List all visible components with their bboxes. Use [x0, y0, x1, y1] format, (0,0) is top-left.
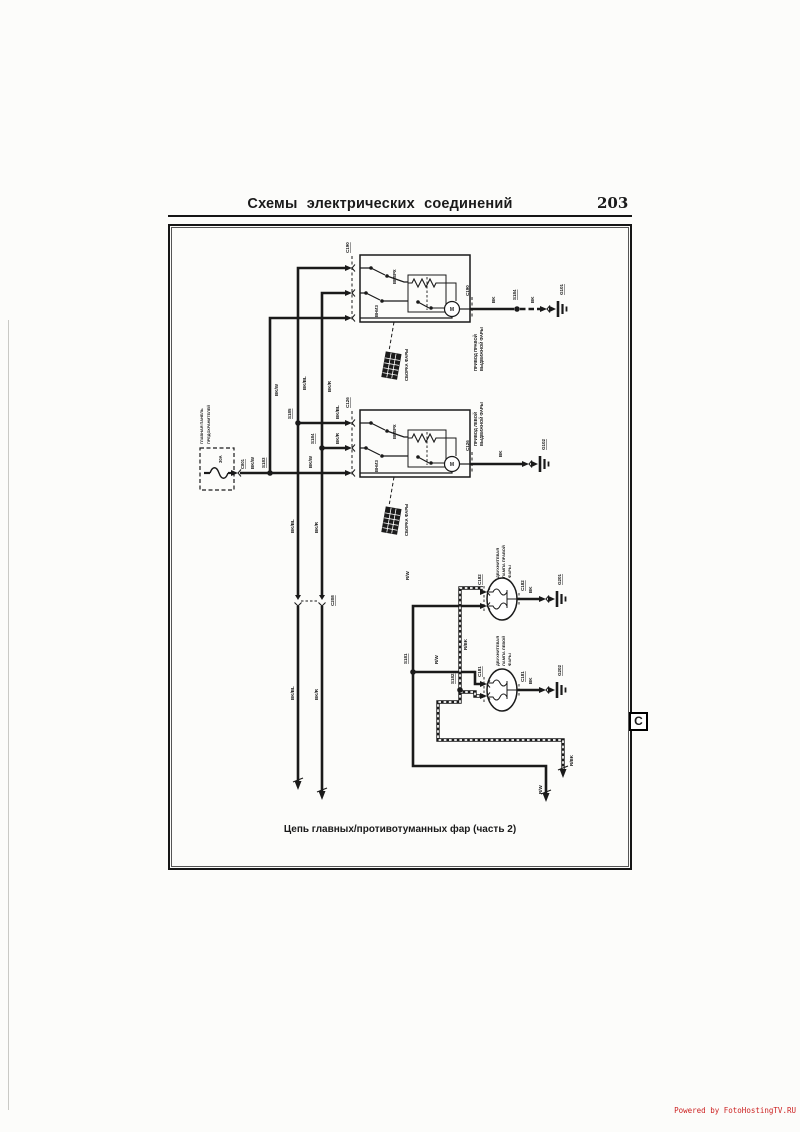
feed-wires: BK/W S183 BK/W BK/BL BK/R S185 BK/BL S18… [240, 268, 345, 800]
ground-label-g201: G201 [557, 573, 562, 585]
fuse-panel-label-2: ПРЕДОХРАНИТЕЛЕЙ [207, 405, 211, 444]
connector-label-c181-left: C181 [477, 666, 482, 677]
wire-rw [413, 606, 546, 794]
splice-label-s185: S185 [287, 408, 292, 419]
left-lamp-name-3: ФАРЫ [507, 653, 512, 666]
retractor-up-label-left: ВВЕРХ [392, 424, 397, 439]
inline-connector-pin-left [295, 595, 302, 606]
wire-label-bkw-main: BK/W [308, 455, 313, 468]
wire-label-bk-4: BK [528, 586, 533, 593]
splice-label-s181: S181 [403, 653, 408, 664]
wire-label-bkr-low: BK/R [314, 688, 319, 700]
wire-label-rw-top: R/W [405, 571, 410, 581]
continuation-arrow-bkbl [293, 778, 303, 790]
right-lamp-bulb [484, 578, 519, 620]
ground-icon-g101 [549, 301, 567, 317]
splice-dot-s184 [319, 445, 325, 451]
wire-label-bkw-fuse: BK/W [250, 456, 255, 469]
wire-bkr [322, 293, 345, 792]
wire-label-bkbl-branch: BK/BL [335, 405, 340, 419]
assembly-label-right: СБОРКА ФАРЫ [404, 349, 409, 381]
retractor-up-label-right: ВВЕРХ [392, 269, 397, 284]
motor-icon-label-left: М [450, 462, 454, 468]
right-lamp-name-1: ДВУХНИТЕВАЯ [495, 548, 500, 578]
wire-label-rw-branch: R/W [434, 655, 439, 665]
wire-label-rbk-top: R/BK [463, 638, 468, 650]
retractor-name-right-1: ПРИВОД ПРАВОЙ [473, 334, 478, 371]
diagram-caption: Цепь главных/противотуманных фар (часть … [168, 824, 632, 835]
connector-label-c182-right: C182 [520, 580, 525, 591]
connector-pin-c801 [231, 470, 241, 477]
wire-label-bkr-mid: BK/R [314, 521, 319, 533]
connector-label-c126-right: C126 [465, 440, 470, 451]
fuse-panel-label-1: ГЛАВНАЯ ПАНЕЛЬ [200, 408, 204, 444]
splice-label-s184: S184 [310, 433, 315, 444]
wire-label-bk-3: BK [498, 450, 503, 457]
ground-label-g101: G101 [559, 283, 564, 295]
chapter-tab: C [629, 712, 648, 731]
continuation-arrow-rbk [558, 766, 568, 778]
fuse-panel: ГЛАВНАЯ ПАНЕЛЬ ПРЕДОХРАНИТЕЛЕЙ 30A C801 [200, 405, 245, 490]
ground-icon-g102 [531, 456, 549, 472]
ground-label-g102: G102 [541, 438, 546, 450]
wire-label-bkbl-low: BK/BL [290, 686, 295, 700]
splice-dot-s182 [457, 687, 463, 693]
connector-label-c208: C208 [330, 595, 335, 606]
wire-label-bkbl-vert: BK/BL [302, 376, 307, 390]
splice-label-s182: S182 [450, 673, 455, 684]
connector-label-c801: C801 [240, 458, 245, 469]
headlamp-assembly-icon-right [382, 352, 401, 379]
manual-page: Схемы электрических соединений 203 [0, 0, 800, 1132]
splice-dot-s185 [295, 420, 301, 426]
motor-icon-label-right: М [450, 307, 454, 313]
wire-label-bk-5: BK [528, 677, 533, 684]
wire-label-rbk-bottom: R/BK [569, 754, 574, 766]
retractor-name-right-2: ВЫДВИЖНОЙ ФАРЫ [479, 327, 484, 371]
fuse-rating-label: 30A [218, 455, 223, 463]
splice-label-s184-ground: S184 [512, 289, 517, 300]
connector-label-c181-right: C181 [520, 671, 525, 682]
left-lamp: ДВУХНИТЕВАЯ ЛАМПА ЛЕВОЙ ФАРЫ C181 C181 B… [477, 636, 566, 711]
connector-label-c126-left: C126 [345, 397, 350, 408]
ground-icon-g201 [548, 591, 566, 607]
assembly-label-left: СБОРКА ФАРЫ [404, 504, 409, 536]
wire-label-bkr-vert: BK/R [327, 380, 332, 392]
connector-label-c182-left: C182 [477, 574, 482, 585]
wire-label-bkw-vert: BK/W [274, 383, 279, 396]
retractor-down-label-left: ВНИЗ [374, 460, 379, 472]
left-lamp-bulb [484, 669, 519, 711]
wire-label-bkbl-mid: BK/BL [290, 519, 295, 533]
splice-dot-s181 [410, 669, 416, 675]
left-lamp-name-1: ДВУХНИТЕВАЯ [495, 636, 500, 666]
fuse-icon [210, 468, 228, 479]
ground-label-g202: G202 [557, 664, 562, 676]
retractor-name-left-2: ВЫДВИЖНОЙ ФАРЫ [479, 402, 484, 446]
wiring-diagram: ГЛАВНАЯ ПАНЕЛЬ ПРЕДОХРАНИТЕЛЕЙ 30A C801 … [0, 0, 800, 1132]
headlamp-assembly-icon-left [382, 507, 401, 534]
right-lamp: ДВУХНИТЕВАЯ ЛАМПА ПРАВОЙ ФАРЫ C182 C182 … [477, 545, 566, 620]
left-retractor: М C126 C126 ВВЕРХ ВНИЗ ПРИВОД ЛЕВОЙ ВЫДВ… [345, 397, 549, 536]
retractor-down-label-right: ВНИЗ [374, 305, 379, 317]
wire-label-bk-2: BK [530, 296, 535, 303]
wire-bkw-vertical [270, 318, 345, 473]
connector-label-c190-right: C190 [465, 285, 470, 296]
left-lamp-name-2: ЛАМПА ЛЕВОЙ [501, 636, 506, 666]
connector-label-c190-left: C190 [345, 242, 350, 253]
continuation-arrow-bkr [317, 788, 327, 800]
splice-dot-s184-ground [514, 306, 520, 312]
watermark: Powered by FotoHostingTV.RU [560, 1106, 796, 1115]
right-lamp-name-2: ЛАМПА ПРАВОЙ [501, 545, 506, 578]
wire-label-bkr-branch: BK/R [335, 432, 340, 444]
splice-label-s183: S183 [261, 457, 266, 468]
ground-icon-g202 [548, 682, 566, 698]
right-lamp-name-3: ФАРЫ [507, 565, 512, 578]
retractor-name-left-1: ПРИВОД ЛЕВОЙ [473, 412, 478, 446]
inline-connector-pin-right [319, 595, 326, 606]
wire-label-bk-1: BK [491, 296, 496, 303]
splice-dot-s183 [267, 470, 273, 476]
wire-label-rw-bottom: R/W [538, 785, 543, 795]
right-retractor: М C190 C190 ВВЕРХ ВНИЗ ПРИВОД ПРАВОЙ ВЫД… [345, 242, 567, 381]
